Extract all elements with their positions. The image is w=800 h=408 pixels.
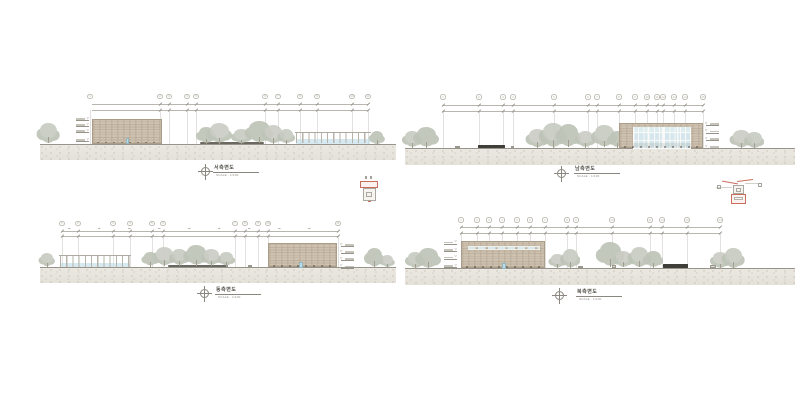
level-marker-datum-icon: ▽ (455, 240, 457, 243)
ground (405, 268, 795, 285)
clerestory-window-strip (468, 246, 540, 251)
panel-scale-label: SCALE : 1/100 (579, 298, 601, 301)
grid-bubble-label: 14 (718, 219, 721, 223)
building-base-marks (466, 266, 540, 268)
tree (725, 248, 742, 263)
tree (563, 249, 578, 263)
grid-bubble-label: 4 (500, 219, 503, 223)
level-marker-text-smudge (444, 265, 453, 266)
level-marker-datum-icon: ▽ (455, 264, 457, 267)
grid-bubble: 1 (458, 217, 463, 222)
tree-trunk (557, 264, 558, 269)
grid-bubble: 9 (573, 217, 578, 222)
title-datum-crosshair-v (559, 288, 560, 304)
tree-trunk (415, 264, 416, 269)
tree-trunk (639, 261, 640, 267)
grid-bubble: 3 (486, 217, 491, 222)
tree-trunk (733, 262, 734, 268)
keyplan-inner-room (366, 192, 372, 197)
tree (631, 247, 648, 262)
grid-bubble-label: 7 (543, 219, 546, 223)
bench (663, 264, 688, 269)
keyplan-highlight-red (360, 181, 378, 188)
tree (551, 254, 564, 265)
planter-box (612, 265, 616, 268)
level-marker-datum-icon: ▽ (455, 255, 457, 258)
tree-trunk (610, 259, 611, 267)
planter-box (710, 265, 716, 269)
grid-bubble: 11 (647, 217, 652, 222)
grid-bubble: 10 (609, 217, 614, 222)
keyplan-icon (355, 176, 385, 203)
grid-bubble-label: 8 (565, 219, 568, 223)
grid-line (662, 233, 663, 268)
dimension-tick (719, 226, 722, 229)
grid-bubble-label: 12 (660, 219, 663, 223)
keyplan-red-tick (368, 201, 371, 202)
keyplan-roof-line-red (737, 179, 753, 182)
tree-trunk (623, 262, 624, 267)
grid-bubble: 6 (527, 217, 532, 222)
panel-title: 북측면도 (577, 290, 597, 296)
level-marker-line (444, 267, 457, 268)
level-marker-line (444, 244, 457, 245)
tree-trunk (570, 262, 571, 268)
level-marker-line (444, 259, 457, 260)
grid-bubble: 14 (717, 217, 722, 222)
elevation-panel-north: ▽▽▽▽1234567891011121314북측면도SCALE : 1/100 (0, 0, 800, 408)
tree-trunk (428, 262, 429, 268)
grid-bubble-label: 13 (685, 219, 688, 223)
keyplan-icon (716, 176, 764, 204)
keyplan-post (370, 176, 372, 179)
building-brick-strip (461, 241, 545, 269)
keyplan-roof-line-red (722, 181, 738, 184)
tree-trunk (653, 263, 654, 268)
tree-trunk (720, 264, 721, 269)
level-marker-datum-icon: ▽ (455, 248, 457, 251)
elevation-sheet: ▽▽▽▽1234567891011서측면도SCALE : 1/100▽▽▽▽12… (0, 0, 800, 408)
grid-bubble-label: 9 (574, 219, 577, 223)
grid-bubble-label: 3 (487, 219, 490, 223)
tree (646, 251, 661, 263)
grid-bubble: 8 (564, 217, 569, 222)
level-marker-line (444, 251, 457, 252)
grid-line (545, 233, 546, 268)
keyplan-inner-room (736, 188, 741, 193)
keyplan-post (365, 176, 367, 179)
keyplan-corner-block (758, 183, 762, 187)
keyplan-leader-line (745, 183, 759, 184)
level-marker-text-smudge (444, 257, 453, 258)
keyplan-corner-block (717, 185, 721, 189)
planter-box (578, 266, 583, 269)
grid-bubble-label: 10 (610, 219, 613, 223)
grid-bubble: 4 (499, 217, 504, 222)
grid-bubble-label: 11 (648, 219, 651, 223)
grid-bubble: 5 (514, 217, 519, 222)
grid-bubble: 13 (684, 217, 689, 222)
grid-bubble-label: 5 (515, 219, 518, 223)
grid-bubble-label: 1 (459, 219, 462, 223)
grid-bubble-label: 6 (528, 219, 531, 223)
grid-bubble: 2 (474, 217, 479, 222)
grid-bubble-label: 2 (475, 219, 478, 223)
grid-line (687, 233, 688, 268)
tree (616, 251, 631, 263)
grid-bubble: 12 (659, 217, 664, 222)
grid-bubble: 7 (542, 217, 547, 222)
keyplan-inner-marks (734, 197, 743, 200)
tree (419, 248, 438, 263)
title-datum-crosshair-h (552, 295, 567, 296)
level-marker-text-smudge (444, 249, 453, 250)
level-marker-text-smudge (444, 242, 453, 243)
